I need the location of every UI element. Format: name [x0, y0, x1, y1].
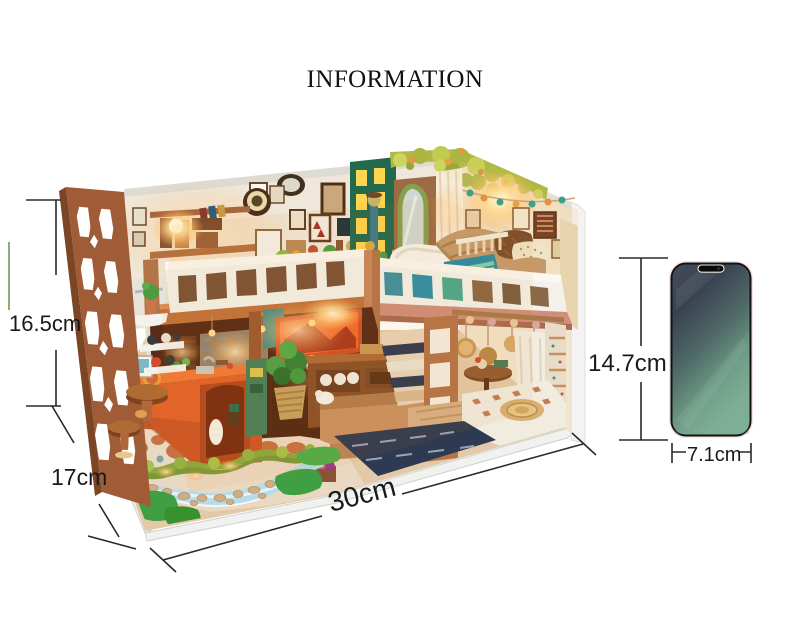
svg-text:14.7cm: 14.7cm: [588, 350, 667, 377]
svg-text:16.5cm: 16.5cm: [9, 311, 81, 336]
svg-text:7.1cm: 7.1cm: [687, 444, 741, 466]
svg-text:17cm: 17cm: [51, 464, 107, 490]
